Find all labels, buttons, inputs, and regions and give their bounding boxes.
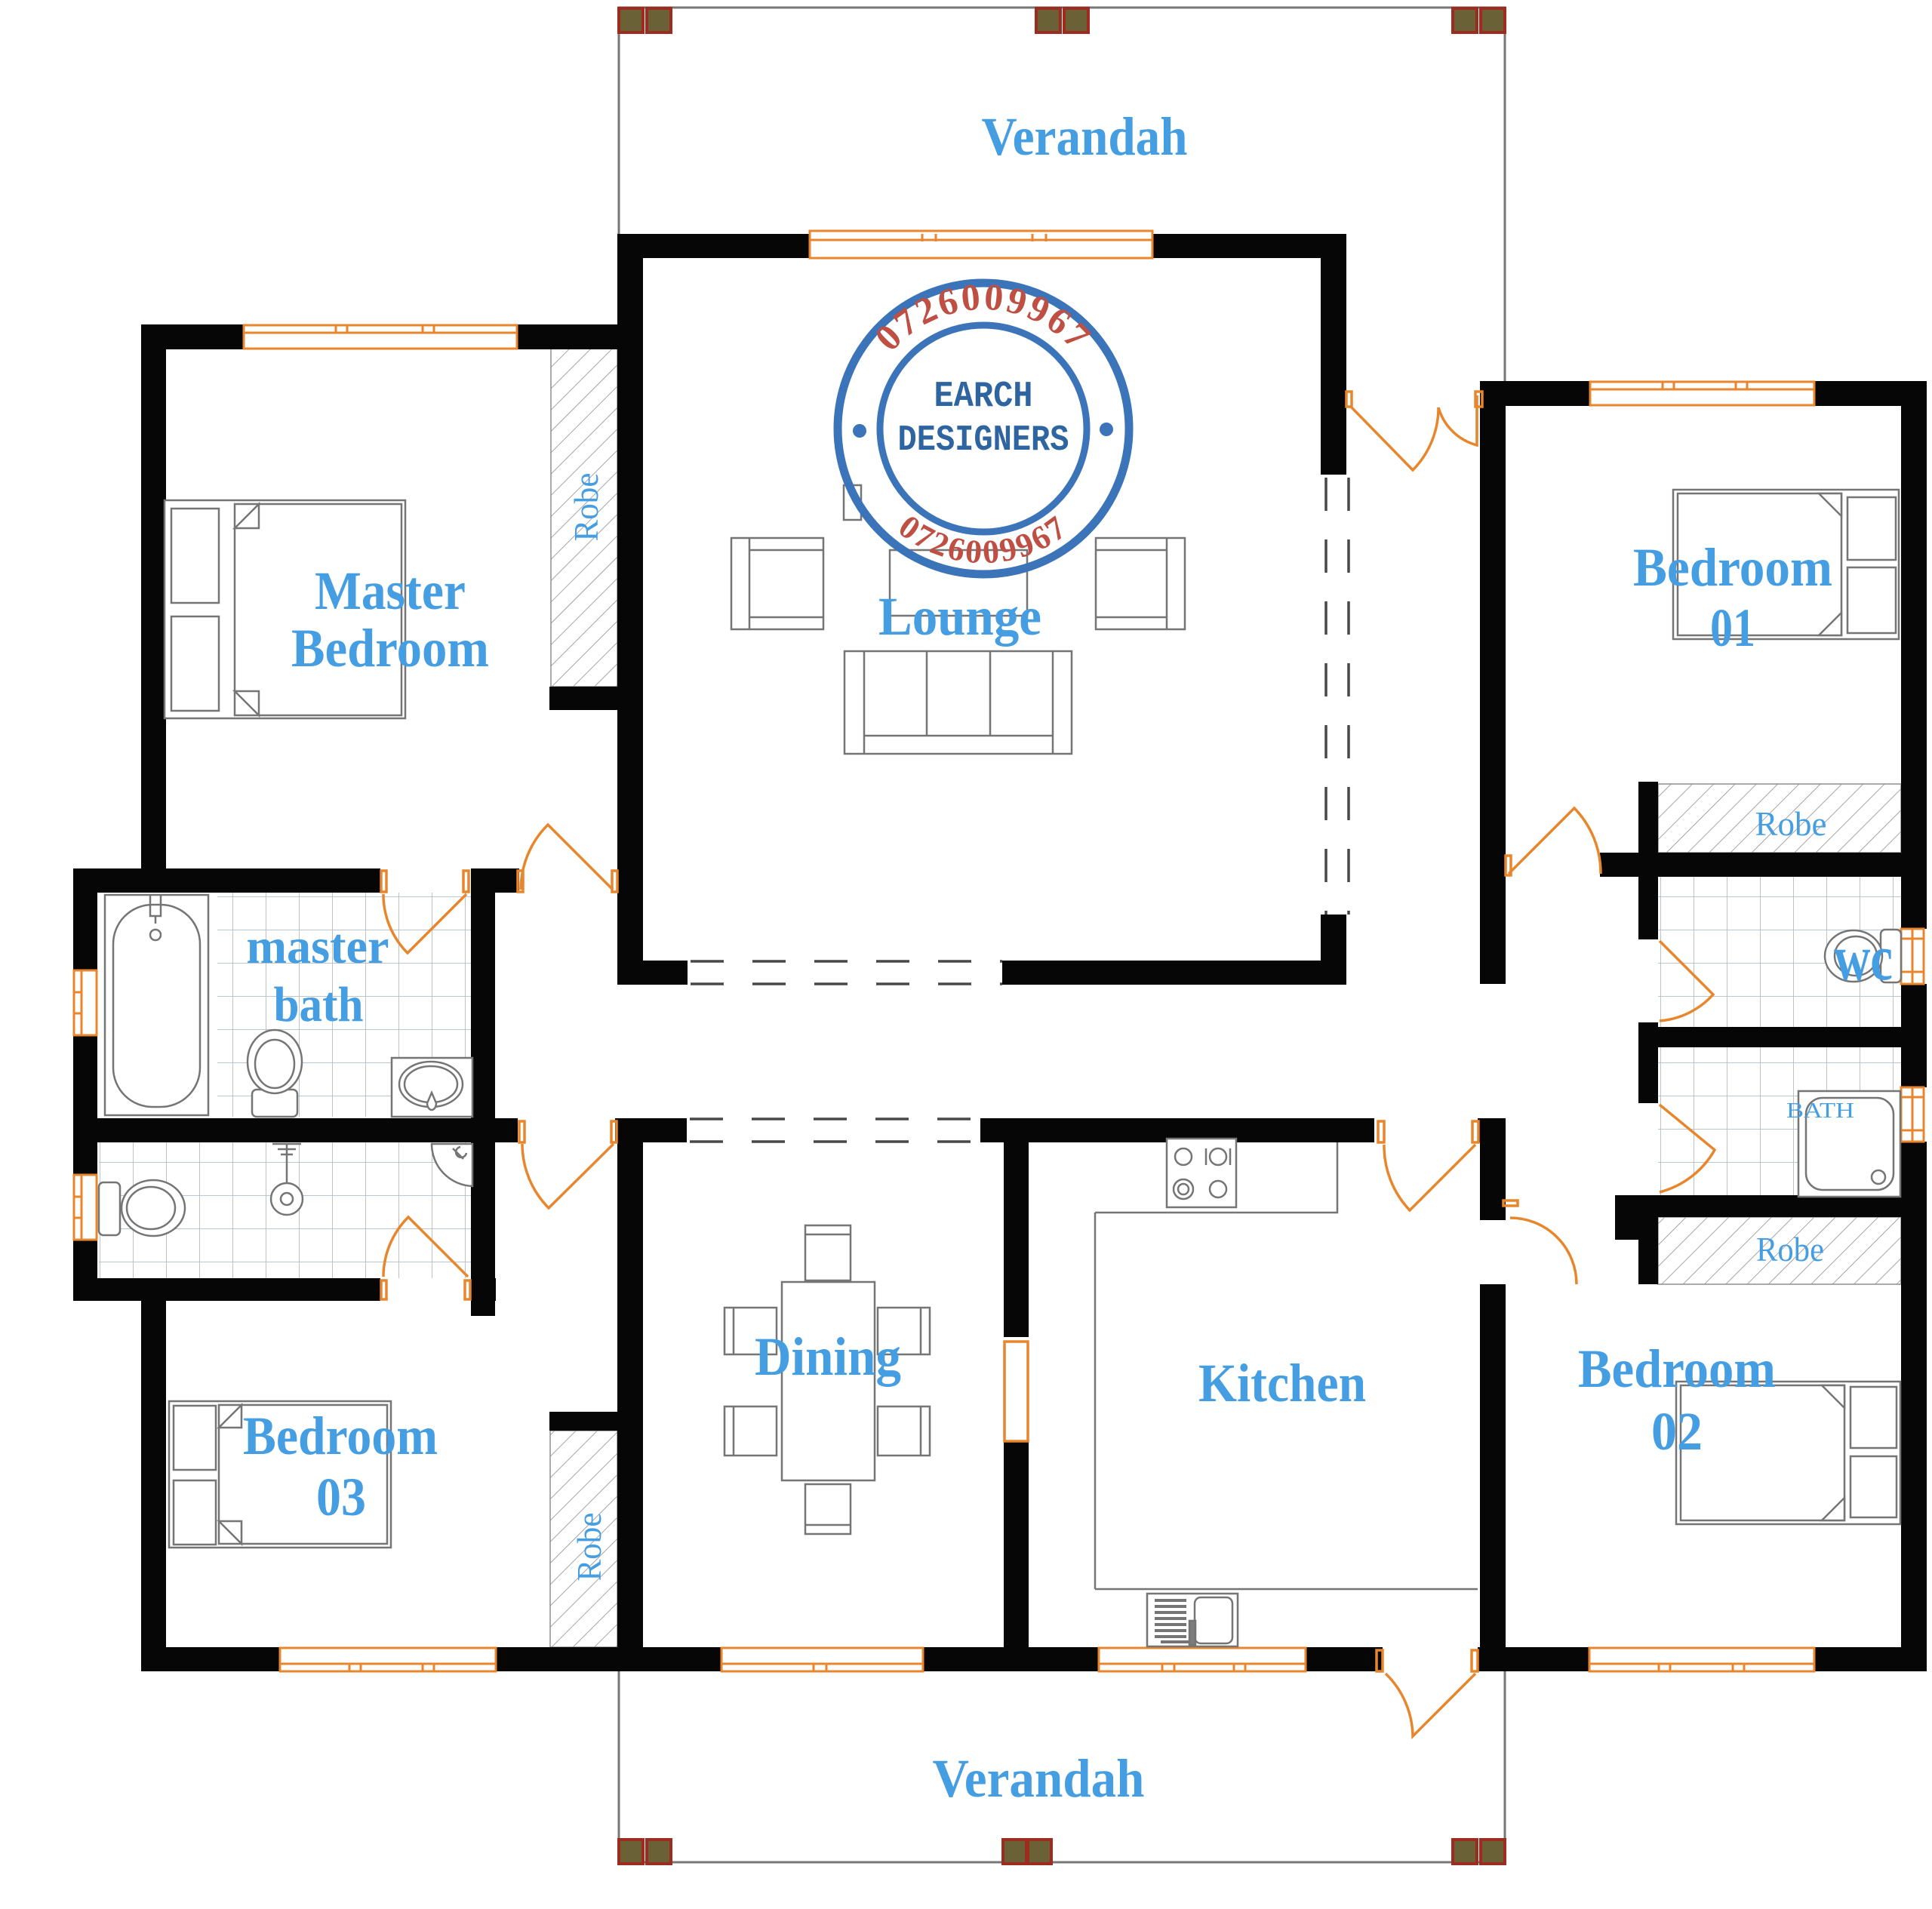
- svg-text:EARCH: EARCH: [934, 377, 1033, 417]
- svg-text:Bedroom: Bedroom: [243, 1406, 438, 1466]
- svg-text:Bedroom: Bedroom: [1578, 1339, 1776, 1399]
- svg-text:Robe: Robe: [570, 1513, 608, 1582]
- svg-text:Verandah: Verandah: [982, 106, 1188, 167]
- svg-text:Dining: Dining: [755, 1326, 901, 1387]
- svg-text:Verandah: Verandah: [933, 1748, 1145, 1809]
- svg-text:wc: wc: [1834, 921, 1893, 994]
- svg-text:Lounge: Lounge: [878, 586, 1041, 647]
- svg-text:bath: bath: [274, 977, 364, 1032]
- svg-text:Master: Master: [315, 561, 466, 621]
- svg-text:03: 03: [316, 1467, 366, 1527]
- svg-text:01: 01: [1710, 598, 1755, 658]
- svg-text:master: master: [247, 919, 389, 974]
- svg-text:Robe: Robe: [1756, 1230, 1824, 1268]
- svg-text:Robe: Robe: [1755, 804, 1827, 843]
- svg-text:DESIGNERS: DESIGNERS: [898, 420, 1069, 461]
- svg-text:02: 02: [1651, 1401, 1703, 1462]
- svg-text:Kitchen: Kitchen: [1198, 1353, 1366, 1413]
- svg-text:Bedroom: Bedroom: [291, 618, 489, 678]
- svg-text:Bedroom: Bedroom: [1633, 537, 1832, 598]
- svg-text:BATH: BATH: [1786, 1099, 1854, 1123]
- svg-text:Robe: Robe: [567, 473, 605, 542]
